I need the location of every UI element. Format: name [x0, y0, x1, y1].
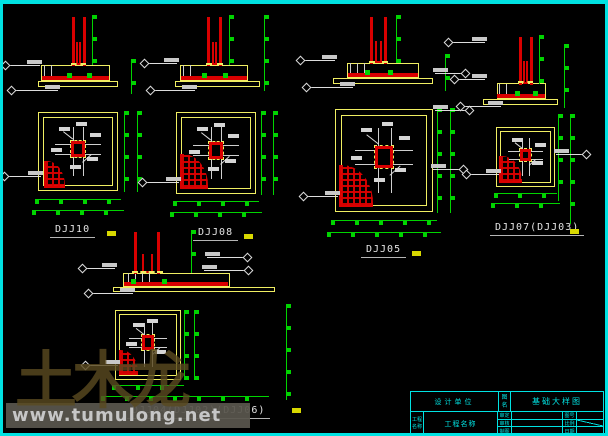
titleblock-bottom-row: 工程名称 工程名称 审定 图号 审核 比例 制图 日期: [411, 412, 603, 435]
dimension-chain: [570, 114, 575, 224]
callout-text: [228, 134, 239, 138]
callout-text: [70, 165, 81, 169]
rebar-dot: [388, 70, 393, 75]
dimension-chain: [445, 54, 450, 91]
leader-line: [311, 87, 353, 88]
titleblock-project-name: 工程名称: [424, 412, 498, 435]
titleblock-drawing-title: 基础大样图: [511, 392, 603, 411]
dimension-chain: [437, 108, 442, 213]
titleblock-project-label: 工程名称: [411, 412, 424, 435]
leader-line: [305, 60, 335, 61]
leader-line: [87, 268, 115, 269]
watermark-logo: 土木龙: [15, 350, 186, 412]
construction-joint-line: [132, 271, 163, 273]
rebar-dot: [67, 73, 72, 78]
construction-joint-line: [71, 63, 86, 65]
dimension-chain: [396, 15, 401, 63]
column-cross-section: [520, 149, 530, 161]
leader-line: [471, 174, 499, 175]
titleblock-field-label: 图号: [563, 412, 577, 420]
scale-note: [292, 408, 301, 413]
footing-rebar-line: [497, 94, 545, 98]
callout-text: [361, 128, 372, 132]
leader-line: [204, 270, 244, 271]
dimension-chain: [491, 203, 559, 208]
leader-line: [149, 63, 177, 64]
section-view-djj10: [38, 17, 118, 87]
plan-view-djj07: [496, 127, 555, 187]
section-view-djj04: [113, 232, 275, 292]
footing-rebar-line: [348, 73, 418, 77]
scale-note: [570, 229, 579, 234]
callout-text: [133, 323, 144, 327]
dimension-chain: [539, 35, 544, 84]
column-rebar: [370, 17, 373, 64]
callout-text: [189, 150, 200, 154]
callout-text: [512, 138, 523, 142]
leader-line: [433, 169, 459, 170]
callout-text: [208, 167, 219, 171]
dimension-chain: [173, 201, 259, 206]
footing-rebar-line: [42, 76, 109, 80]
footing-base-outline: [113, 287, 275, 292]
footing-rebar-line: [181, 76, 247, 80]
callout-text: [535, 143, 546, 147]
dimension-chain: [124, 111, 129, 191]
construction-joint-line: [206, 63, 222, 65]
callout-text: [382, 122, 393, 126]
detail-label-djj05: DJJ05: [361, 244, 406, 258]
titleblock-field-label: 审核: [498, 420, 512, 428]
rebar-dot: [87, 73, 92, 78]
column-rebar: [134, 232, 137, 274]
rebar-dot: [533, 91, 538, 96]
leader-line: [207, 257, 243, 258]
dimension-chain: [32, 210, 124, 215]
dimension-chain: [131, 59, 136, 94]
leader-line: [465, 106, 501, 107]
dimension-chain: [170, 212, 262, 217]
section-view-djj05: [333, 17, 433, 84]
column-rebar: [157, 232, 160, 274]
section-view-djj07: [483, 37, 558, 105]
column-rebar: [83, 17, 86, 66]
leader-line: [155, 90, 195, 91]
leader-line: [93, 293, 133, 294]
leader-line: [453, 42, 485, 43]
dimension-chain: [194, 310, 199, 381]
footing-rebar-line: [124, 282, 228, 286]
callout-text: [399, 136, 410, 140]
titleblock-field-value: [577, 427, 603, 435]
construction-joint-line: [518, 81, 532, 83]
titleblock-field-label: 制图: [498, 427, 512, 435]
title-block: 设计单位 图名 基础大样图 工程名称 工程名称 审定 图号 审核 比例 制图 日…: [410, 391, 604, 436]
column-cross-section: [375, 146, 392, 167]
leader-line: [10, 65, 40, 66]
column-rebar: [519, 37, 522, 85]
rebar-dot: [515, 91, 520, 96]
titleblock-field-label: 比例: [563, 420, 577, 428]
dimension-chain: [261, 111, 266, 194]
titleblock-drawing-name-label: 图名: [499, 392, 511, 411]
titleblock-field-value: [577, 412, 603, 420]
scale-note: [244, 234, 253, 239]
leader-line: [308, 196, 338, 197]
leader-line: [16, 90, 58, 91]
cad-drawing-canvas: DJJ10 DJJ: [0, 0, 608, 436]
detail-label-djj10: DJJ10: [50, 224, 95, 238]
plan-view-djj05: [335, 109, 433, 212]
scale-note: [107, 231, 116, 236]
dimension-chain: [331, 220, 437, 225]
dimension-chain: [92, 15, 97, 65]
callout-text: [59, 127, 70, 131]
titleblock-field-label: 日期: [563, 427, 577, 435]
titleblock-fields-grid: 审定 图号 审核 比例 制图 日期: [498, 412, 603, 435]
callout-text: [90, 133, 101, 137]
column-rebar: [530, 37, 533, 85]
column-rebar: [384, 17, 387, 64]
column-rebar: [219, 17, 222, 66]
dimension-chain: [273, 111, 278, 194]
rebar-dot: [223, 73, 228, 78]
leader-line: [435, 73, 461, 74]
titleblock-field-value: [512, 420, 563, 428]
titleblock-org-cell: 设计单位: [411, 392, 499, 411]
titleblock-field-value: [577, 420, 603, 428]
callout-text: [374, 178, 385, 182]
dimension-chain: [327, 232, 440, 237]
dimension-chain: [564, 44, 569, 109]
plan-view-djj10: [38, 112, 118, 191]
dimension-chain: [450, 108, 455, 213]
rebar-dot: [162, 279, 167, 284]
dimension-chain: [558, 114, 563, 201]
callout-text: [76, 122, 87, 126]
callout-text: [197, 127, 208, 131]
titleblock-field-label: 审定: [498, 412, 512, 420]
leader-line: [9, 176, 41, 177]
dimension-chain: [264, 15, 269, 91]
column-cross-section: [71, 141, 85, 157]
dimension-chain: [286, 304, 291, 400]
dimension-chain: [229, 15, 234, 65]
titleblock-top-row: 设计单位 图名 基础大样图: [411, 392, 603, 412]
detail-label-djj08: DJJ08: [193, 227, 238, 241]
column-cross-section: [209, 142, 223, 159]
leader-line: [556, 154, 582, 155]
titleblock-field-value: [512, 412, 563, 420]
leader-line: [147, 182, 179, 183]
section-view-djj08: [175, 17, 260, 87]
dimension-chain: [494, 193, 558, 198]
scale-note: [412, 251, 421, 256]
plan-view-djj08: [176, 112, 256, 194]
callout-text: [51, 148, 62, 152]
callout-text: [351, 156, 362, 160]
titleblock-field-value: [512, 427, 563, 435]
construction-joint-line: [369, 61, 388, 63]
rebar-dot: [202, 73, 207, 78]
callout-text: [147, 319, 158, 323]
leader-line: [459, 79, 485, 80]
dimension-chain: [35, 199, 121, 204]
rebar-dot: [131, 279, 136, 284]
rebar-dot: [365, 70, 370, 75]
callout-text: [214, 123, 225, 127]
column-rebar: [72, 17, 75, 66]
column-rebar: [207, 17, 210, 66]
